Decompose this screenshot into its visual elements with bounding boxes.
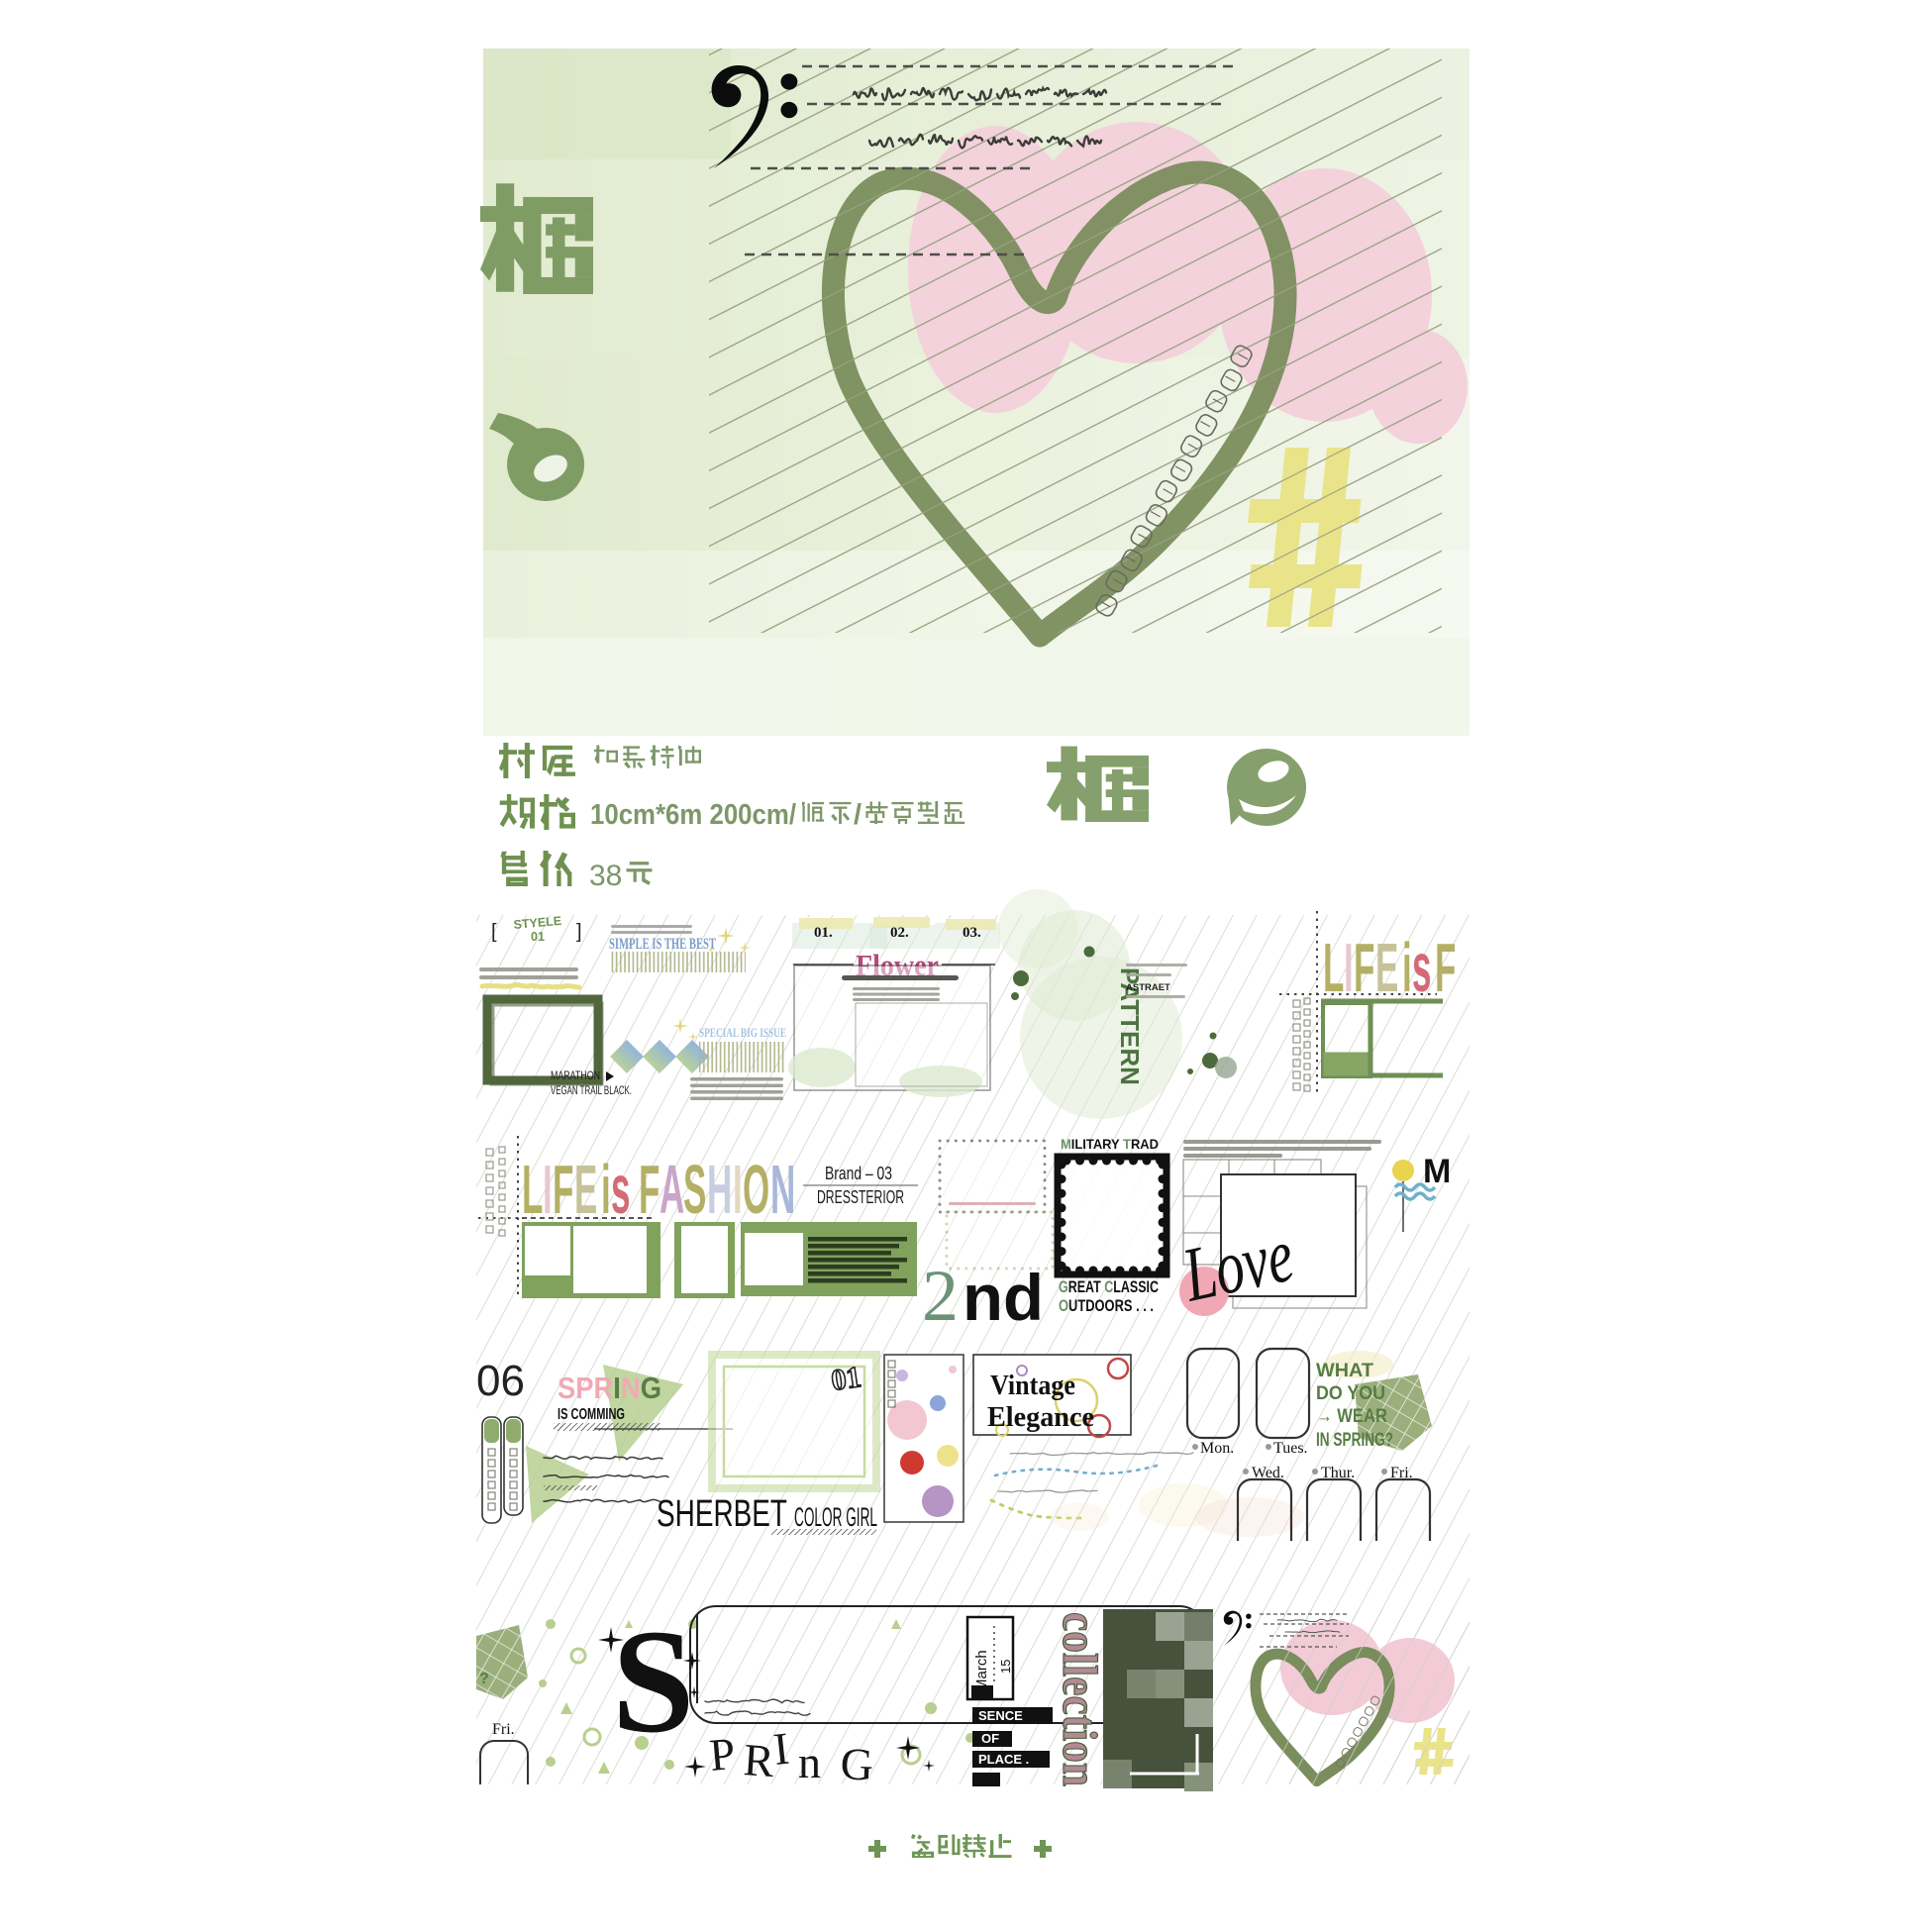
svg-text:s: s — [1412, 929, 1431, 1006]
svg-text:DO YOU: DO YOU — [1316, 1383, 1385, 1404]
svg-text:Fri.: Fri. — [492, 1721, 515, 1738]
svg-text:E: E — [574, 1151, 597, 1228]
svg-text:I: I — [733, 1151, 743, 1228]
svg-text:06: 06 — [476, 1357, 525, 1405]
svg-text:?: ? — [479, 1671, 489, 1687]
svg-text:Vintage: Vintage — [990, 1371, 1075, 1401]
svg-text:SPRING: SPRING — [558, 1371, 661, 1405]
svg-text:MARATHON: MARATHON — [551, 1068, 600, 1082]
svg-text:38: 38 — [589, 860, 622, 892]
svg-text:nd: nd — [963, 1261, 1044, 1334]
svg-text:S: S — [612, 1599, 694, 1764]
svg-text:WHAT: WHAT — [1316, 1361, 1373, 1381]
svg-text:M: M — [1423, 1153, 1451, 1190]
svg-text:F: F — [639, 1151, 659, 1228]
svg-text:A: A — [659, 1151, 684, 1228]
svg-text:H: H — [707, 1151, 732, 1228]
svg-text:F: F — [1354, 929, 1374, 1006]
svg-text:15: 15 — [998, 1660, 1013, 1674]
svg-text:P: P — [707, 1728, 737, 1780]
svg-text:O: O — [743, 1151, 769, 1228]
svg-text:Tues.: Tues. — [1273, 1440, 1308, 1457]
svg-text:N: N — [770, 1151, 795, 1228]
svg-text:/: / — [854, 799, 862, 831]
svg-text:F: F — [1435, 929, 1456, 1006]
svg-text:i: i — [601, 1151, 611, 1228]
svg-text:March: March — [973, 1650, 990, 1691]
svg-text:collection: collection — [1053, 1612, 1108, 1786]
svg-text:→ WEAR: → WEAR — [1316, 1406, 1387, 1427]
svg-text:i: i — [1402, 929, 1412, 1006]
svg-text:Mon.: Mon. — [1200, 1440, 1234, 1457]
svg-text:I: I — [1344, 929, 1354, 1006]
svg-text:SHERBET: SHERBET — [657, 1493, 787, 1535]
svg-text:n: n — [798, 1737, 821, 1787]
svg-text:OUTDOORS . . .: OUTDOORS . . . — [1059, 1296, 1154, 1315]
svg-text:02.: 02. — [890, 925, 909, 941]
svg-text:L: L — [522, 1151, 543, 1228]
svg-text:DRESSTERIOR: DRESSTERIOR — [817, 1187, 904, 1207]
svg-text:I: I — [543, 1151, 553, 1228]
svg-text:F: F — [553, 1151, 573, 1228]
svg-text:S: S — [683, 1151, 706, 1228]
svg-text:L: L — [1323, 929, 1344, 1006]
svg-text:E: E — [1375, 929, 1398, 1006]
svg-text:IS COMMING: IS COMMING — [558, 1406, 625, 1423]
svg-text:Elegance: Elegance — [987, 1402, 1094, 1433]
svg-text:SIMPLE IS THE BEST: SIMPLE IS THE BEST — [609, 936, 716, 953]
svg-text:10cm*6m 200cm/: 10cm*6m 200cm/ — [590, 799, 796, 831]
svg-text:]: ] — [576, 921, 582, 943]
svg-text:IN SPRING?: IN SPRING? — [1316, 1430, 1393, 1451]
svg-text:Brand – 03: Brand – 03 — [825, 1164, 892, 1183]
svg-text:SENCE: SENCE — [978, 1708, 1023, 1723]
svg-text:G: G — [839, 1738, 874, 1790]
svg-text:MILITARY TRAD: MILITARY TRAD — [1061, 1136, 1159, 1152]
svg-text:OF: OF — [981, 1731, 999, 1746]
svg-text:ASTRAET: ASTRAET — [1126, 982, 1170, 993]
svg-text:[: [ — [491, 921, 497, 943]
svg-text:COLOR GIRL: COLOR GIRL — [794, 1502, 877, 1532]
svg-text:01: 01 — [829, 1361, 862, 1397]
svg-text:03.: 03. — [963, 925, 981, 941]
svg-text:PLACE .: PLACE . — [978, 1752, 1029, 1767]
svg-text:VEGAN TRAIL BLACK.: VEGAN TRAIL BLACK. — [551, 1083, 632, 1097]
svg-text:SPECIAL BIG ISSUE: SPECIAL BIG ISSUE — [699, 1025, 786, 1040]
svg-text:GREAT CLASSIC: GREAT CLASSIC — [1059, 1277, 1159, 1296]
svg-text:01: 01 — [531, 930, 545, 944]
svg-text:01.: 01. — [814, 925, 833, 941]
svg-text:R: R — [742, 1734, 775, 1786]
svg-text:s: s — [611, 1151, 630, 1228]
